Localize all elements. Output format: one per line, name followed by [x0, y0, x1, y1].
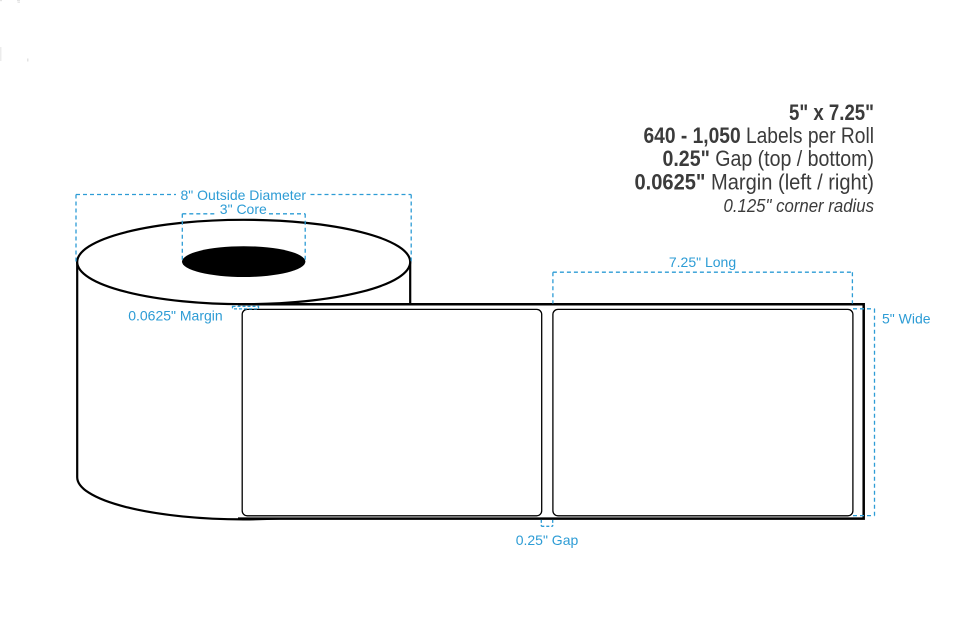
svg-text:7.25" Long: 7.25" Long	[669, 254, 736, 270]
svg-text:0.0625" Margin (left / right): 0.0625" Margin (left / right)	[635, 170, 875, 195]
svg-text:5" Wide: 5" Wide	[882, 310, 931, 326]
svg-text:3" Core: 3" Core	[220, 201, 267, 217]
svg-text:0.25" Gap: 0.25" Gap	[516, 532, 579, 548]
svg-text:640 - 1,050 Labels per Roll: 640 - 1,050 Labels per Roll	[644, 123, 875, 148]
svg-text:0.0625" Margin: 0.0625" Margin	[128, 308, 222, 324]
svg-text:5" x 7.25": 5" x 7.25"	[789, 100, 874, 125]
svg-text:0.25" Gap (top / bottom): 0.25" Gap (top / bottom)	[663, 146, 875, 171]
svg-text:0.125" corner radius: 0.125" corner radius	[724, 195, 875, 216]
